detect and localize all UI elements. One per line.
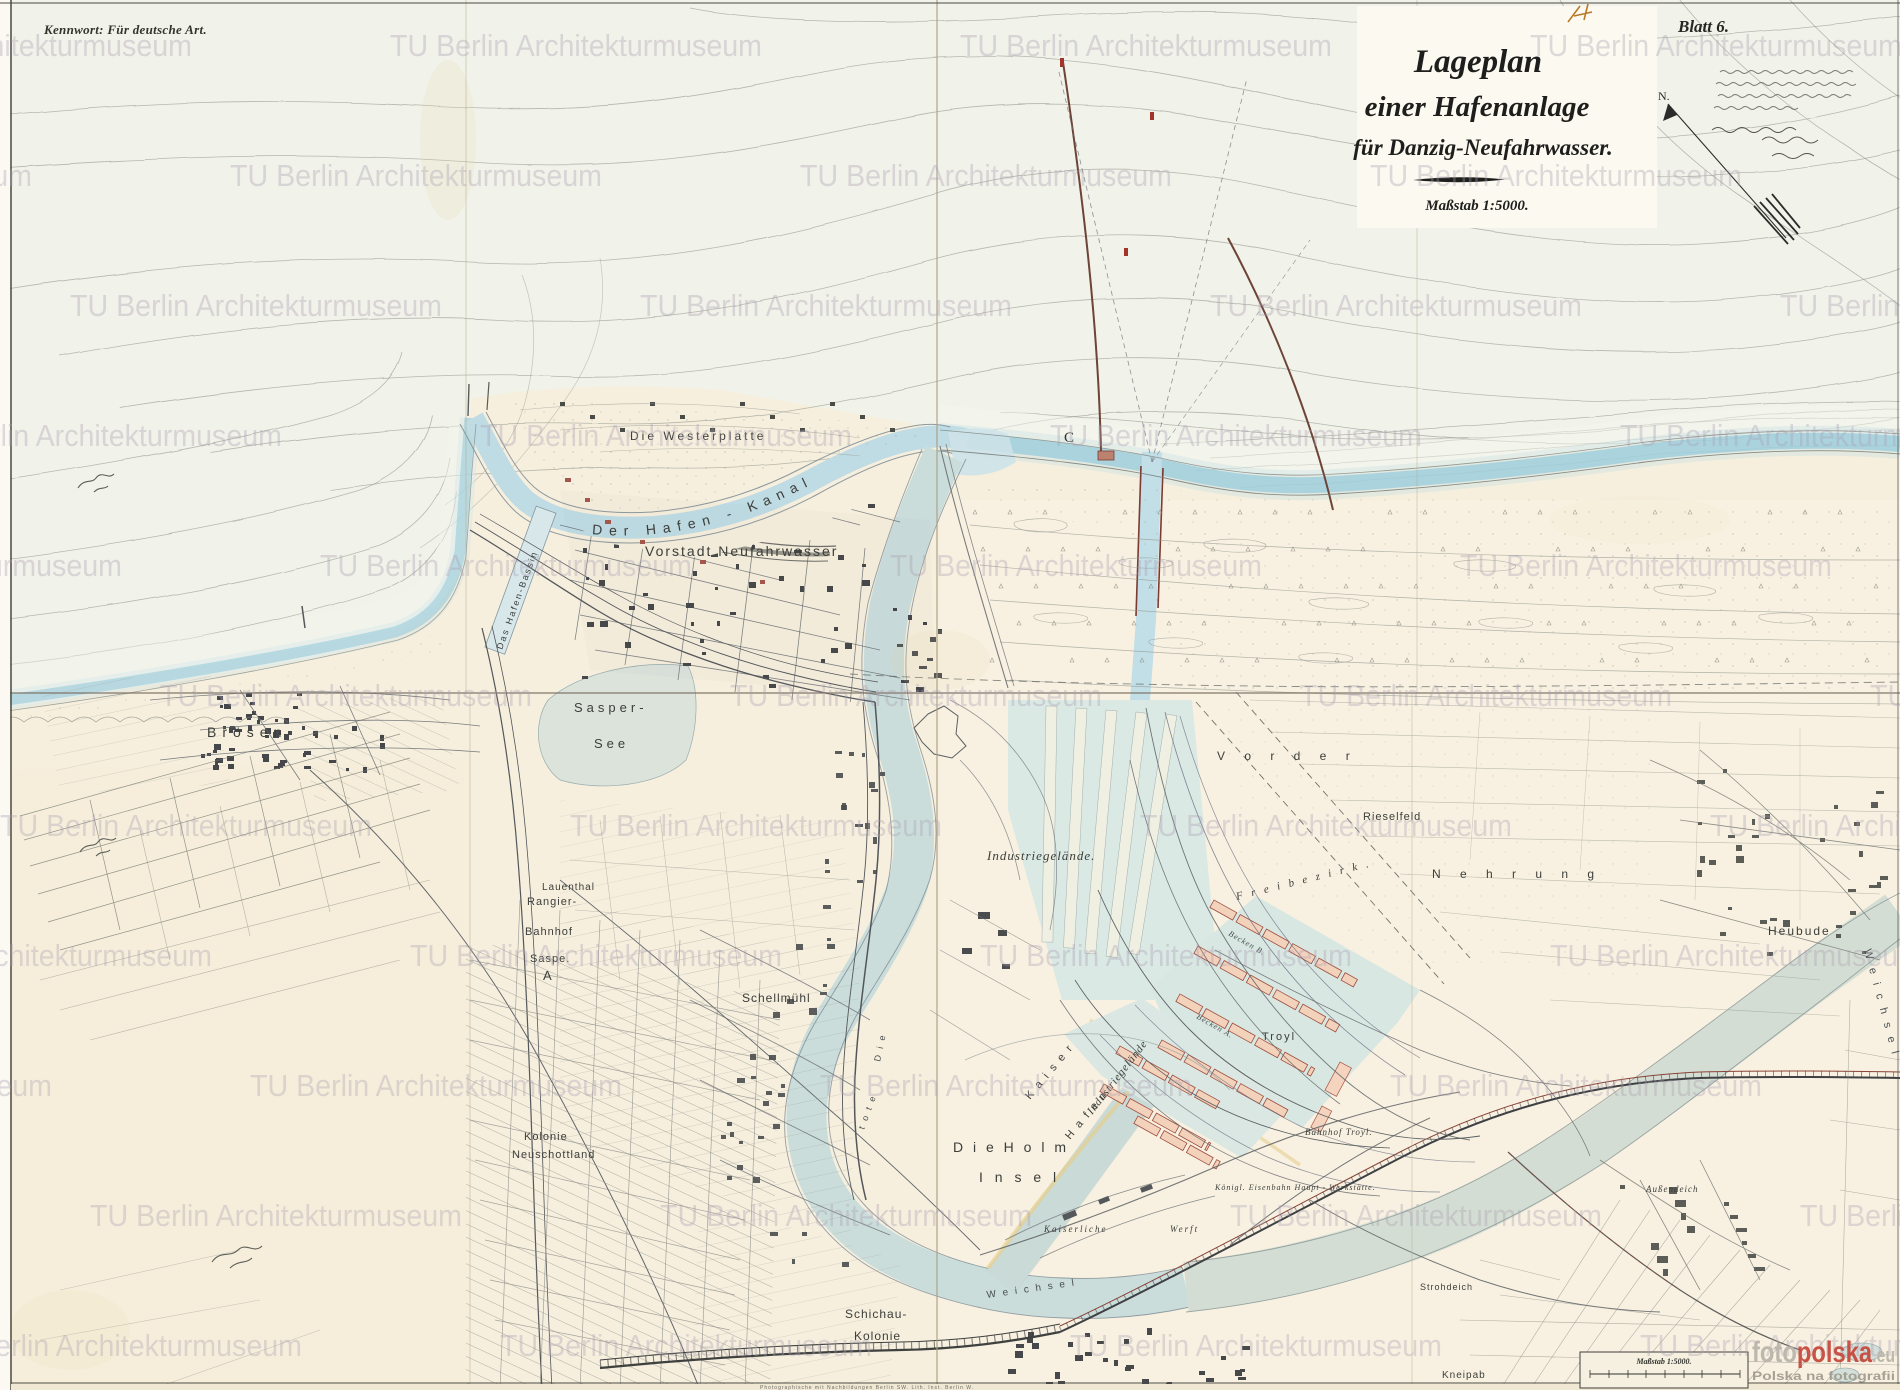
svg-text:Kneipab: Kneipab: [1442, 1370, 1486, 1381]
svg-text:Troyl: Troyl: [1262, 1031, 1296, 1043]
svg-text:TU Berlin Architekturmuseum: TU Berlin Architekturmuseum: [1300, 678, 1672, 713]
svg-text:TU Berlin Architekturmuseum: TU Berlin Architekturmuseum: [250, 1068, 622, 1103]
svg-text:TU Berlin Architekturmuseum: TU Berlin Architekturmuseum: [0, 1068, 52, 1103]
svg-text:Kolonie: Kolonie: [524, 1131, 568, 1143]
svg-text:Rangier-: Rangier-: [527, 896, 577, 908]
svg-text:I n s e l: I n s e l: [979, 1169, 1060, 1185]
svg-text:Photographische mit Nachbild: Photographische mit Nachbildungen Berlin…: [760, 1385, 974, 1390]
svg-text:TU Berlin Architekturmuseum: TU Berlin Architekturmuseum: [640, 288, 1012, 323]
svg-text:TU Berlin Architekturmuseum: TU Berlin Architekturmuseum: [70, 288, 442, 323]
svg-text:TU Berlin Architekturmuseum: TU Berlin Architekturmuseum: [1230, 1198, 1602, 1233]
svg-text:Maßstab 1:5000.: Maßstab 1:5000.: [1424, 198, 1528, 214]
svg-text:TU Berlin Architekturmuseum: TU Berlin Architekturmuseum: [410, 938, 782, 973]
svg-text:Strohdeich: Strohdeich: [1420, 1282, 1473, 1292]
svg-text:Schellmühl: Schellmühl: [742, 991, 811, 1005]
svg-text:TU Berlin Architekturmuseum: TU Berlin Architekturmuseum: [0, 158, 32, 193]
svg-text:TU Berlin Architekturmuseum: TU Berlin Architekturmuseum: [0, 418, 282, 453]
svg-text:TU Berlin Architekturmuseum: TU Berlin Architekturmuseum: [390, 28, 762, 63]
svg-text:TU Berlin Architekturmuseum: TU Berlin Architekturmuseum: [1620, 418, 1900, 453]
svg-text:TU Berlin Architekturmuseum: TU Berlin Architekturmuseum: [0, 1328, 302, 1363]
svg-text:Bahnhof: Bahnhof: [525, 926, 573, 938]
svg-text:Sasper-: Sasper-: [574, 700, 648, 715]
svg-text:N.: N.: [1658, 89, 1670, 103]
svg-text:TU Berlin Architekturmuseum: TU Berlin Architekturmuseum: [1370, 158, 1742, 193]
svg-text:TU Berlin Architekturmuseum: TU Berlin Architekturmuseum: [480, 418, 852, 453]
svg-text:Polska na fotografii: Polska na fotografii: [1752, 1369, 1895, 1383]
svg-text:TU Berlin Architekturmuseum: TU Berlin Architekturmuseum: [90, 1198, 462, 1233]
svg-text:Bahnhof Troyl.: Bahnhof Troyl.: [1305, 1127, 1373, 1137]
svg-text:TU Berlin Architekturmuseum: TU Berlin Architekturmuseum: [1140, 808, 1512, 843]
svg-text:Lageplan: Lageplan: [1413, 44, 1542, 80]
svg-text:TU Berlin Architekturmuseum: TU Berlin Architekturmuseum: [890, 548, 1262, 583]
svg-text:TU Berlin Architekturmuseum: TU Berlin Architekturmuseum: [160, 678, 532, 713]
svg-text:für Danzig-Neufahrwasser.: für Danzig-Neufahrwasser.: [1353, 135, 1612, 160]
svg-text:TU Berlin Architekturmuseum: TU Berlin Architekturmuseum: [980, 938, 1352, 973]
svg-text:TU Berlin Architekturmuseum: TU Berlin Architekturmuseum: [1870, 678, 1900, 713]
svg-text:TU Berlin Architekturmuseum: TU Berlin Architekturmuseum: [1800, 1198, 1900, 1233]
svg-text:TU Berlin Architekturmuseum: TU Berlin Architekturmuseum: [820, 1068, 1192, 1103]
svg-text:TU Berlin Architekturmuseum: TU Berlin Architekturmuseum: [1780, 288, 1900, 323]
svg-text:Schichau-: Schichau-: [845, 1307, 907, 1321]
svg-text:TU Berlin Architekturmuseum: TU Berlin Architekturmuseum: [320, 548, 692, 583]
svg-text:TU Berlin Architekturmuseum: TU Berlin Architekturmuseum: [1050, 418, 1422, 453]
svg-text:TU Berlin Architekturmuseum: TU Berlin Architekturmuseum: [230, 158, 602, 193]
svg-text:TU Berlin Architekturmuseum: TU Berlin Architekturmuseum: [1070, 1328, 1442, 1363]
svg-text:TU Berlin Architekturmuseum: TU Berlin Architekturmuseum: [660, 1198, 1032, 1233]
svg-text:Brösen: Brösen: [207, 724, 287, 740]
svg-text:TU Berlin Architekturmuseum: TU Berlin Architekturmuseum: [1460, 548, 1832, 583]
svg-text:TU Berlin Architekturmuseum: TU Berlin Architekturmuseum: [1390, 1068, 1762, 1103]
svg-text:einer Hafenanlage: einer Hafenanlage: [1365, 91, 1590, 123]
svg-text:TU Berlin Architekturmuseum: TU Berlin Architekturmuseum: [570, 808, 942, 843]
svg-text:TU Berlin Architekturmuseum: TU Berlin Architekturmuseum: [0, 28, 192, 63]
svg-text:See: See: [594, 736, 629, 751]
svg-text:N e h r u n g: N e h r u n g: [1432, 867, 1602, 881]
svg-text:TU Berlin Architekturmuseum: TU Berlin Architekturmuseum: [0, 548, 122, 583]
svg-text:TU Berlin Architekturmuseum: TU Berlin Architekturmuseum: [730, 678, 1102, 713]
svg-text:TU Berlin Architekturmuseum: TU Berlin Architekturmuseum: [500, 1328, 872, 1363]
svg-text:Neuschottland: Neuschottland: [512, 1149, 595, 1161]
svg-text:Lauenthal: Lauenthal: [542, 882, 595, 893]
svg-text:Königl. Eisenbahn Haupt - Werk: Königl. Eisenbahn Haupt - Werkstätte.: [1214, 1183, 1376, 1192]
svg-text:TU Berlin Architekturmuseum: TU Berlin Architekturmuseum: [0, 808, 372, 843]
svg-text:Außendeich: Außendeich: [1645, 1184, 1698, 1194]
svg-text:Werft: Werft: [1170, 1224, 1199, 1234]
svg-text:Heubude: Heubude: [1768, 924, 1831, 938]
svg-text:Kaiserliche: Kaiserliche: [1043, 1224, 1108, 1234]
svg-text:TU Berlin Architekturmuseum: TU Berlin Architekturmuseum: [1210, 288, 1582, 323]
svg-text:TU Berlin Architekturmuseum: TU Berlin Architekturmuseum: [1550, 938, 1900, 973]
svg-text:TU Berlin Architekturmuseum: TU Berlin Architekturmuseum: [0, 938, 212, 973]
svg-text:Industriegelände.: Industriegelände.: [986, 848, 1095, 863]
svg-text:TU Berlin Architekturmuseum: TU Berlin Architekturmuseum: [960, 28, 1332, 63]
svg-text:D i e H o l m: D i e H o l m: [953, 1139, 1069, 1155]
svg-text:V o r d e r: V o r d e r: [1217, 749, 1358, 763]
svg-text:TU Berlin Architekturmuseum: TU Berlin Architekturmuseum: [1530, 28, 1900, 63]
svg-text:TU Berlin Architekturmuseum: TU Berlin Architekturmuseum: [800, 158, 1172, 193]
svg-text:TU Berlin Architekturmuseum: TU Berlin Architekturmuseum: [1710, 808, 1900, 843]
